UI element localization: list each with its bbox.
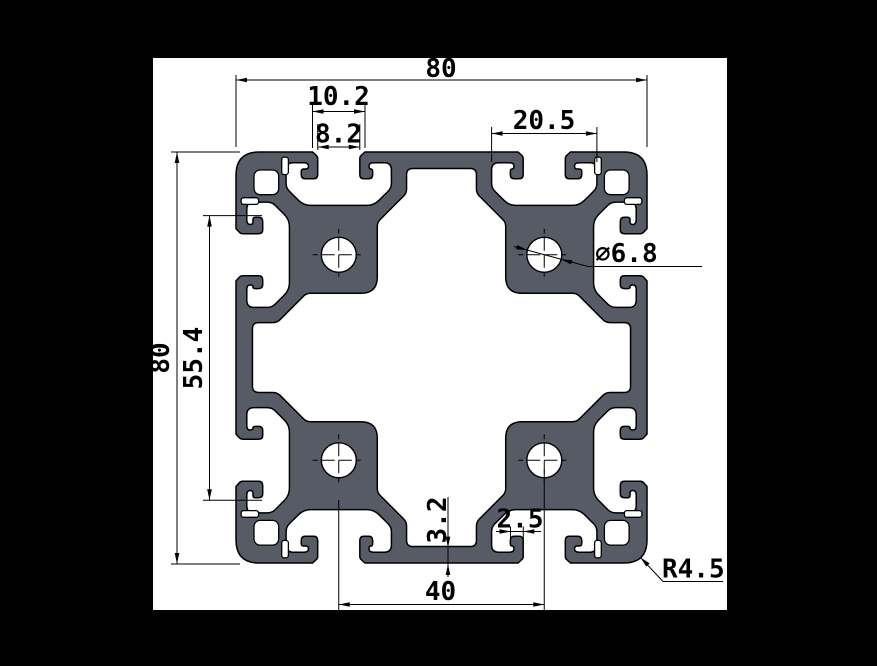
- dim-label-corner-radius: R4.5: [662, 555, 725, 585]
- dim-label-slot-opening: 8.2: [315, 120, 362, 150]
- drawing-stage: 8010.28.220.58055.4∅6.83.22.540R4.5: [0, 0, 877, 666]
- dimension-slot-opening: 8.2: [315, 120, 362, 151]
- dim-label-hole-spacing: 40: [425, 577, 456, 607]
- corner-cavity: [254, 520, 279, 545]
- corner-cavity: [595, 157, 602, 175]
- corner-cavity: [241, 198, 259, 205]
- corner-cavity: [604, 170, 629, 195]
- dim-label-lip-foot: 2.5: [497, 505, 544, 535]
- corner-cavity: [604, 520, 629, 545]
- technical-drawing-canvas: 8010.28.220.58055.4∅6.83.22.540R4.5: [0, 0, 877, 666]
- dim-label-overall-width: 80: [425, 54, 456, 84]
- dim-label-hole-diameter: ∅6.8: [595, 239, 658, 269]
- corner-cavity: [624, 198, 642, 205]
- dim-label-overall-height: 80: [146, 342, 176, 373]
- dim-label-slot-counterbore: 10.2: [307, 82, 370, 112]
- corner-cavity: [241, 511, 259, 518]
- dim-label-inner-span: 55.4: [179, 327, 209, 390]
- corner-cavity: [624, 511, 642, 518]
- corner-cavity: [595, 540, 602, 558]
- dim-label-wall-thickness: 3.2: [423, 497, 453, 544]
- corner-cavity: [254, 170, 279, 195]
- corner-cavity: [282, 157, 289, 175]
- dim-label-slot-cavity-width: 20.5: [513, 106, 576, 136]
- corner-cavity: [282, 540, 289, 558]
